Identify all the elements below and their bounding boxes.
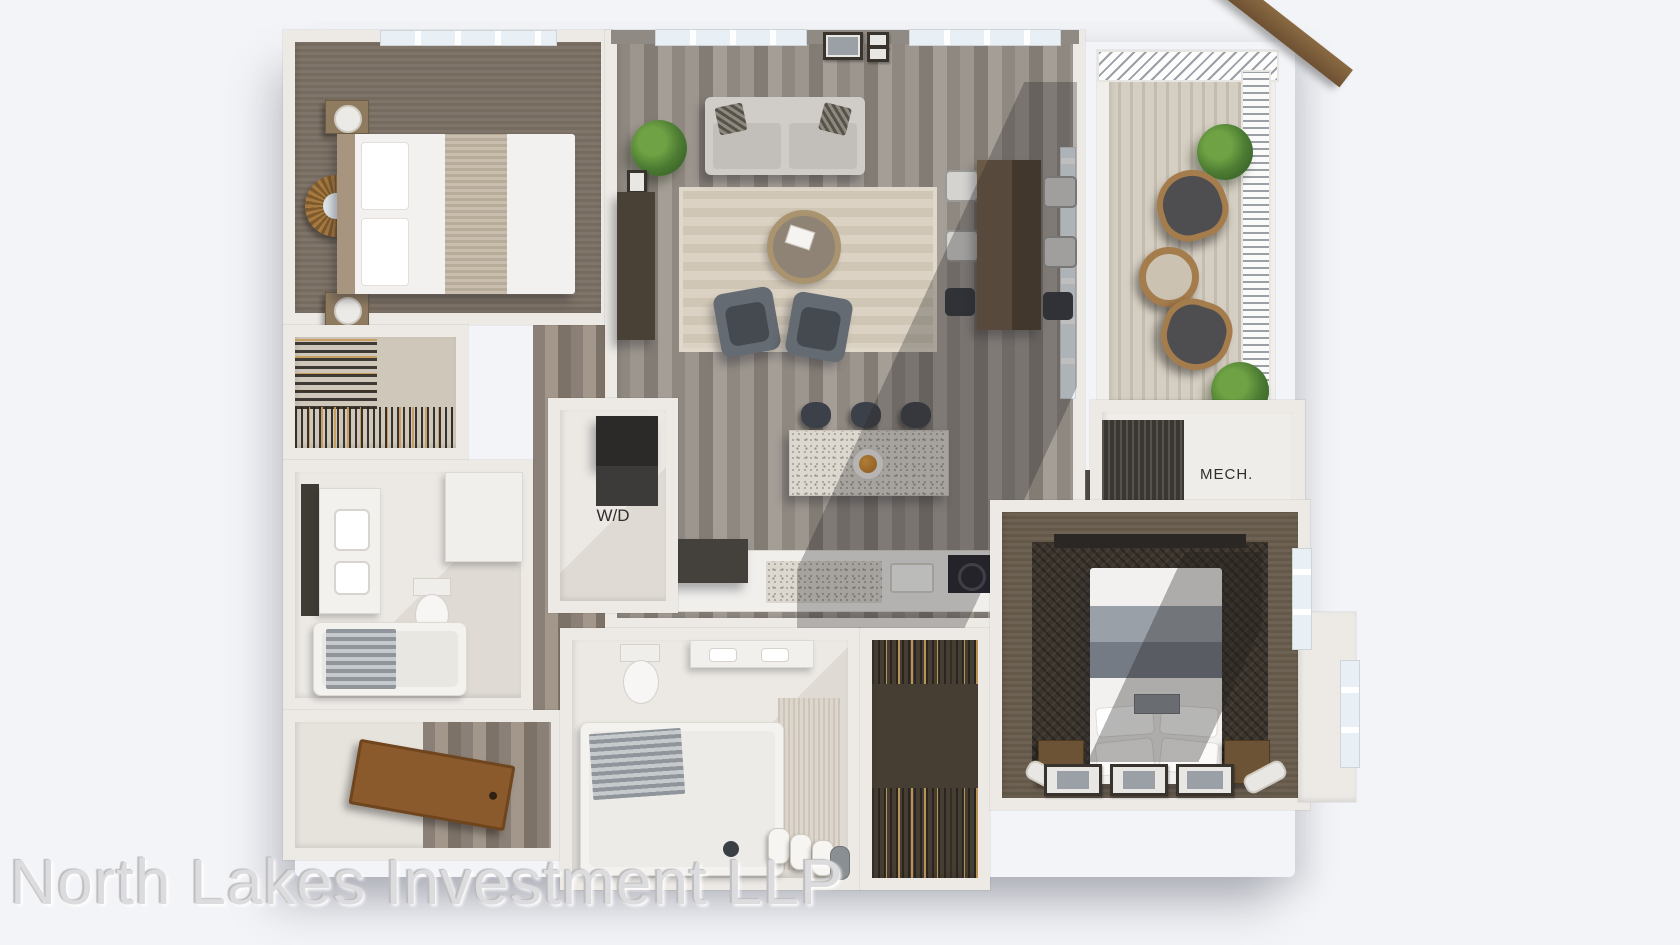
bathtub	[313, 622, 467, 696]
table-lamp	[334, 105, 362, 133]
headboard	[337, 134, 355, 294]
nightstand	[325, 292, 369, 326]
dining-chair	[945, 288, 975, 316]
dryer	[596, 466, 658, 506]
living-window-right	[909, 29, 1061, 46]
bath-towel	[326, 629, 396, 689]
walk-in-closet-1	[283, 325, 468, 460]
vanity-counter	[690, 640, 814, 668]
hanging-clothes	[295, 337, 377, 409]
hanging-clothes	[872, 640, 978, 684]
vanity-counter	[319, 488, 381, 614]
living-window-left	[655, 29, 807, 46]
potted-plant	[631, 120, 687, 176]
bed-runner-blanket	[445, 134, 507, 294]
bedroom2-window	[1340, 660, 1360, 768]
armchair-seat	[795, 306, 841, 352]
sink	[334, 561, 370, 595]
art-photo	[1123, 771, 1155, 789]
balcony-railing-right	[1241, 70, 1271, 404]
bar-stool	[901, 402, 931, 428]
counter-terrazzo	[766, 561, 882, 603]
bedroom1-window	[380, 30, 557, 46]
laundry-label: W/D	[560, 506, 666, 526]
bedroom-2	[990, 500, 1310, 810]
floor-art-frame	[1176, 764, 1234, 796]
dining-chair	[1043, 292, 1073, 320]
balcony	[1097, 50, 1275, 415]
table-lamp	[334, 297, 362, 325]
bar-stool	[801, 402, 831, 428]
dining-chair	[945, 170, 979, 202]
linen-cabinet	[445, 472, 523, 562]
table-lamp	[1241, 758, 1289, 796]
washer	[596, 416, 658, 466]
armchair	[712, 285, 782, 358]
pillow	[361, 218, 409, 286]
mech-label: MECH.	[1200, 466, 1253, 483]
closet-shelf-bar	[1054, 534, 1246, 548]
refrigerator	[670, 539, 748, 583]
sofa	[705, 97, 865, 175]
kitchen-island	[789, 430, 949, 496]
hanging-clothes	[295, 407, 456, 448]
wall-art-frame	[867, 46, 889, 62]
dining-chair	[1043, 176, 1077, 208]
pillow	[361, 142, 409, 210]
dining-chair	[1043, 236, 1077, 268]
bed-queen	[337, 134, 575, 294]
floorplan-render-page: { "watermark": { "text": "North Lakes In…	[0, 0, 1680, 945]
wall-art-frame	[823, 32, 863, 60]
door-handle	[488, 791, 497, 800]
bedroom2-window	[1292, 548, 1312, 650]
nightstand	[325, 100, 369, 134]
wall-art-frame	[627, 170, 647, 194]
sink	[334, 509, 370, 551]
bedroom-1	[283, 30, 613, 325]
bed-stripe	[1090, 606, 1222, 642]
fruit	[859, 455, 877, 473]
bed-stripe	[1090, 642, 1222, 678]
laundry-closet: W/D	[548, 398, 678, 613]
dining-chair	[945, 230, 979, 262]
book	[785, 224, 816, 250]
watermark-text: North Lakes Investment LLP	[10, 845, 844, 919]
burner	[958, 563, 986, 591]
floor-art-frame	[1110, 764, 1168, 796]
walk-in-closet-2	[860, 628, 990, 890]
hanging-clothes	[872, 788, 978, 878]
coffee-table	[767, 210, 841, 284]
vanity-backsplash	[301, 484, 319, 616]
media-console	[617, 192, 655, 340]
toilet	[623, 660, 659, 704]
bath-towel	[589, 728, 685, 800]
throw-pillow	[714, 102, 747, 135]
art-photo	[828, 37, 858, 55]
art-photo	[1057, 771, 1089, 789]
entry-hall	[283, 710, 563, 860]
art-photo	[1187, 771, 1223, 789]
bar-stool	[851, 402, 881, 428]
kitchen-sink	[890, 563, 934, 593]
sink	[709, 648, 737, 662]
floor-art-frame	[1044, 764, 1102, 796]
sink	[761, 648, 789, 662]
fruit-bowl	[852, 448, 884, 480]
bed-tray	[1134, 694, 1180, 714]
armchair	[784, 290, 854, 363]
dining-table	[977, 160, 1041, 330]
bathroom-1	[283, 460, 533, 710]
bed-queen	[1090, 568, 1222, 784]
armchair-seat	[724, 301, 770, 347]
